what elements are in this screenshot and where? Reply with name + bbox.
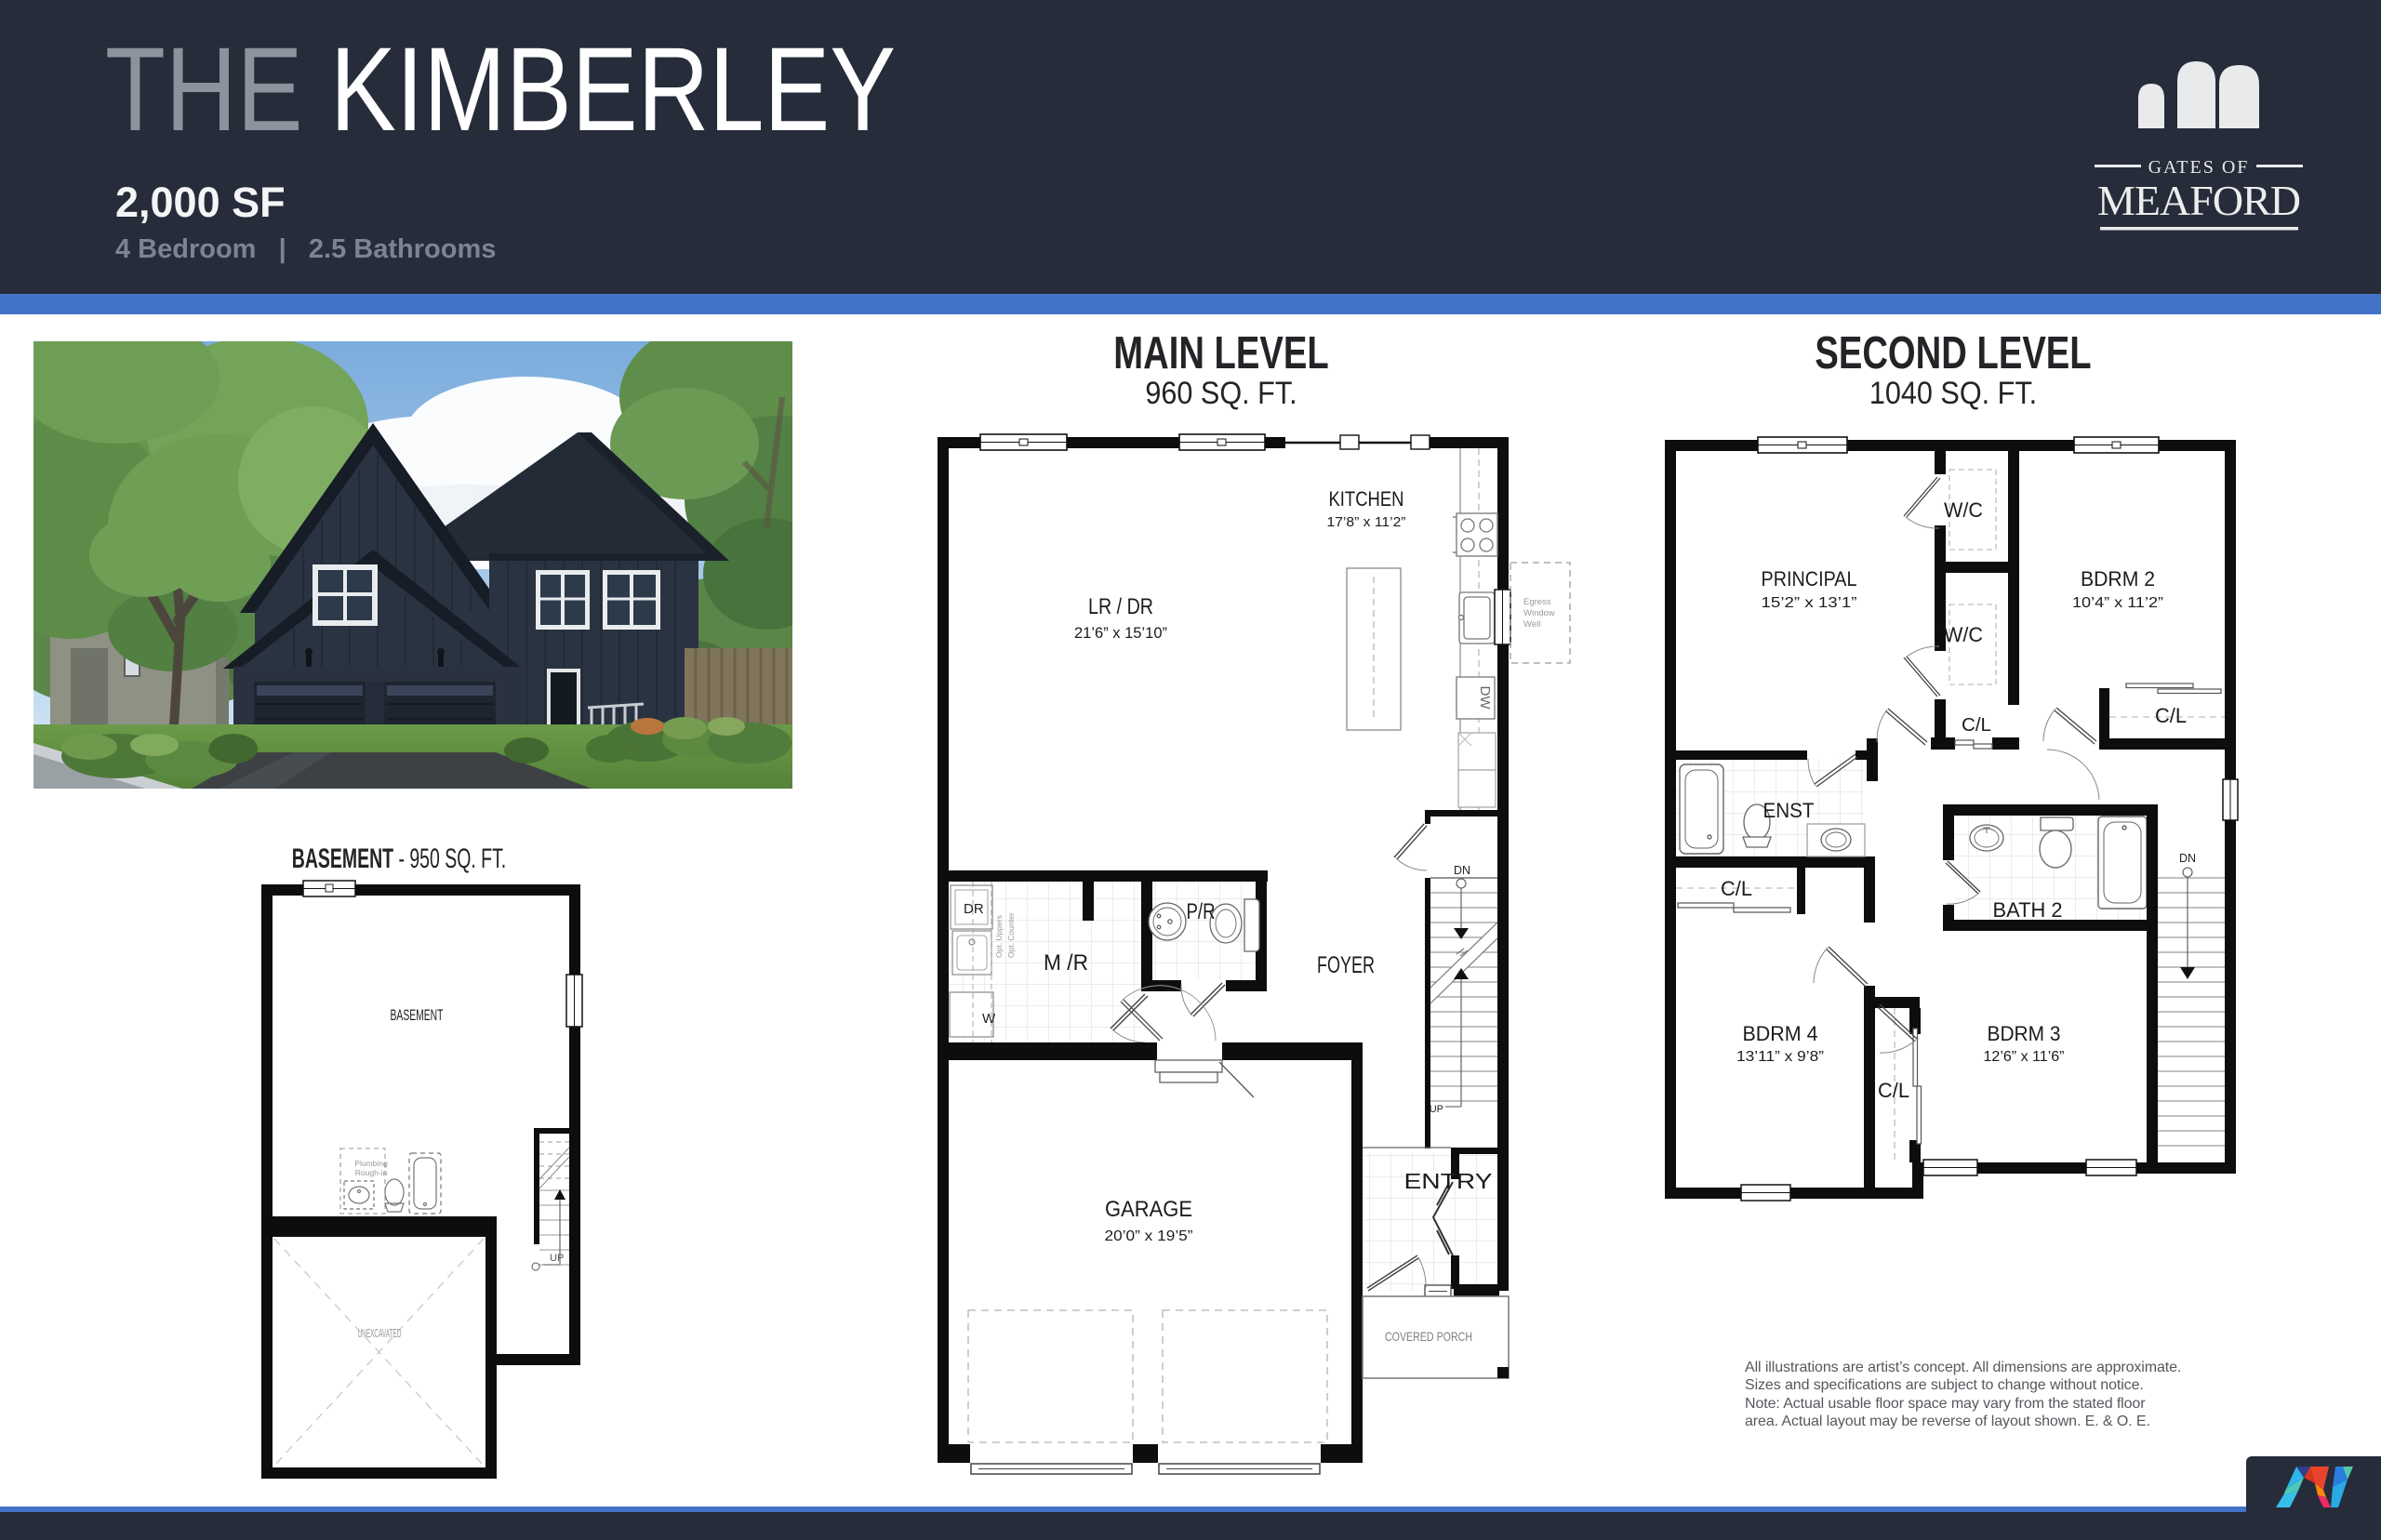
svg-text:KITCHEN: KITCHEN bbox=[1329, 487, 1404, 511]
svg-text:Well: Well bbox=[1523, 619, 1540, 630]
svg-text:DW: DW bbox=[1477, 686, 1493, 710]
svg-text:BDRM 4: BDRM 4 bbox=[1743, 1022, 1818, 1045]
svg-text:W/C: W/C bbox=[1944, 498, 1983, 522]
svg-text:W/C: W/C bbox=[1944, 623, 1983, 646]
svg-text:COVERED PORCH: COVERED PORCH bbox=[1385, 1329, 1472, 1344]
svg-text:DN: DN bbox=[2179, 852, 2196, 865]
svg-text:C/L: C/L bbox=[1721, 877, 1752, 900]
svg-text:Plumbing: Plumbing bbox=[354, 1159, 388, 1168]
svg-text:13’11” x 9’8”: 13’11” x 9’8” bbox=[1736, 1049, 1824, 1065]
svg-text:UNEXCAVATED: UNEXCAVATED bbox=[358, 1327, 402, 1340]
svg-text:UP: UP bbox=[550, 1253, 564, 1264]
svg-text:Egress: Egress bbox=[1523, 597, 1551, 607]
svg-text:Rough-in: Rough-in bbox=[355, 1168, 388, 1177]
svg-text:BDRM 3: BDRM 3 bbox=[1988, 1022, 2061, 1045]
svg-text:GARAGE: GARAGE bbox=[1105, 1197, 1192, 1222]
svg-text:17’8” x 11’2”: 17’8” x 11’2” bbox=[1327, 514, 1406, 530]
svg-text:15’2” x 13’1”: 15’2” x 13’1” bbox=[1762, 595, 1857, 611]
svg-text:LR / DR: LR / DR bbox=[1088, 594, 1153, 619]
svg-text:BASEMENT: BASEMENT bbox=[391, 1006, 444, 1024]
svg-text:DN: DN bbox=[1454, 864, 1470, 877]
svg-text:BATH 2: BATH 2 bbox=[1993, 898, 2063, 922]
svg-text:PRINCIPAL: PRINCIPAL bbox=[1762, 567, 1857, 591]
svg-text:Opt. Counter: Opt. Counter bbox=[1006, 912, 1016, 958]
svg-text:C/L: C/L bbox=[1878, 1079, 1909, 1102]
svg-text:20’0” x 19’5”: 20’0” x 19’5” bbox=[1105, 1228, 1193, 1244]
svg-text:Window: Window bbox=[1523, 608, 1555, 618]
svg-text:C/L: C/L bbox=[2155, 704, 2187, 727]
svg-text:P/R: P/R bbox=[1187, 899, 1216, 924]
svg-text:12’6” x 11’6”: 12’6” x 11’6” bbox=[1984, 1049, 2065, 1065]
svg-text:10’4” x 11’2”: 10’4” x 11’2” bbox=[2072, 595, 2163, 611]
svg-text:Opt. Uppers: Opt. Uppers bbox=[994, 915, 1004, 958]
svg-text:MEAFORD: MEAFORD bbox=[2097, 177, 2300, 224]
svg-text:21’6” x 15’10”: 21’6” x 15’10” bbox=[1074, 624, 1167, 642]
svg-text:DR: DR bbox=[964, 901, 984, 917]
svg-text:C/L: C/L bbox=[1962, 715, 1991, 736]
svg-text:FOYER: FOYER bbox=[1317, 952, 1375, 978]
svg-text:M /R: M /R bbox=[1044, 950, 1088, 976]
svg-text:GATES OF: GATES OF bbox=[2148, 157, 2250, 178]
svg-text:BDRM 2: BDRM 2 bbox=[2081, 567, 2155, 591]
svg-text:ENTRY: ENTRY bbox=[1404, 1169, 1493, 1193]
svg-text:UP: UP bbox=[1430, 1104, 1443, 1115]
svg-text:ENST: ENST bbox=[1763, 799, 1815, 822]
svg-text:W: W bbox=[982, 1011, 996, 1027]
